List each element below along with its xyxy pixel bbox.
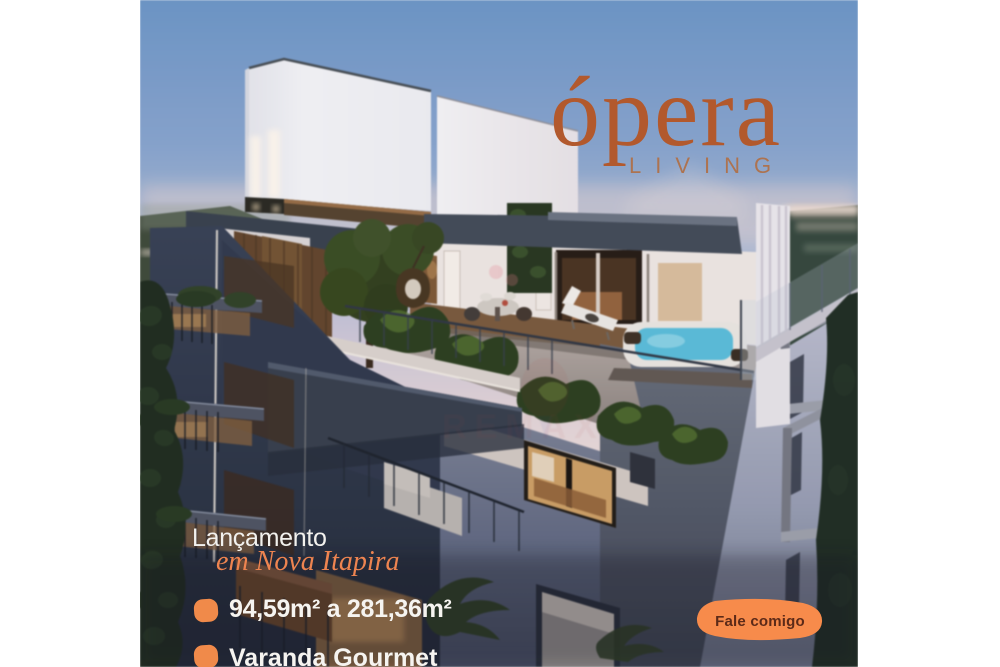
svg-text:ópera: ópera [550, 56, 782, 167]
svg-text:em Nova Itapira: em Nova Itapira [216, 546, 400, 577]
svg-text:Fale comigo: Fale comigo [715, 613, 805, 630]
svg-text:Varanda Gourmet: Varanda Gourmet [229, 644, 438, 667]
svg-text:LIVING: LIVING [629, 153, 785, 178]
svg-text:94,59m² a 281,36m²: 94,59m² a 281,36m² [229, 595, 452, 623]
